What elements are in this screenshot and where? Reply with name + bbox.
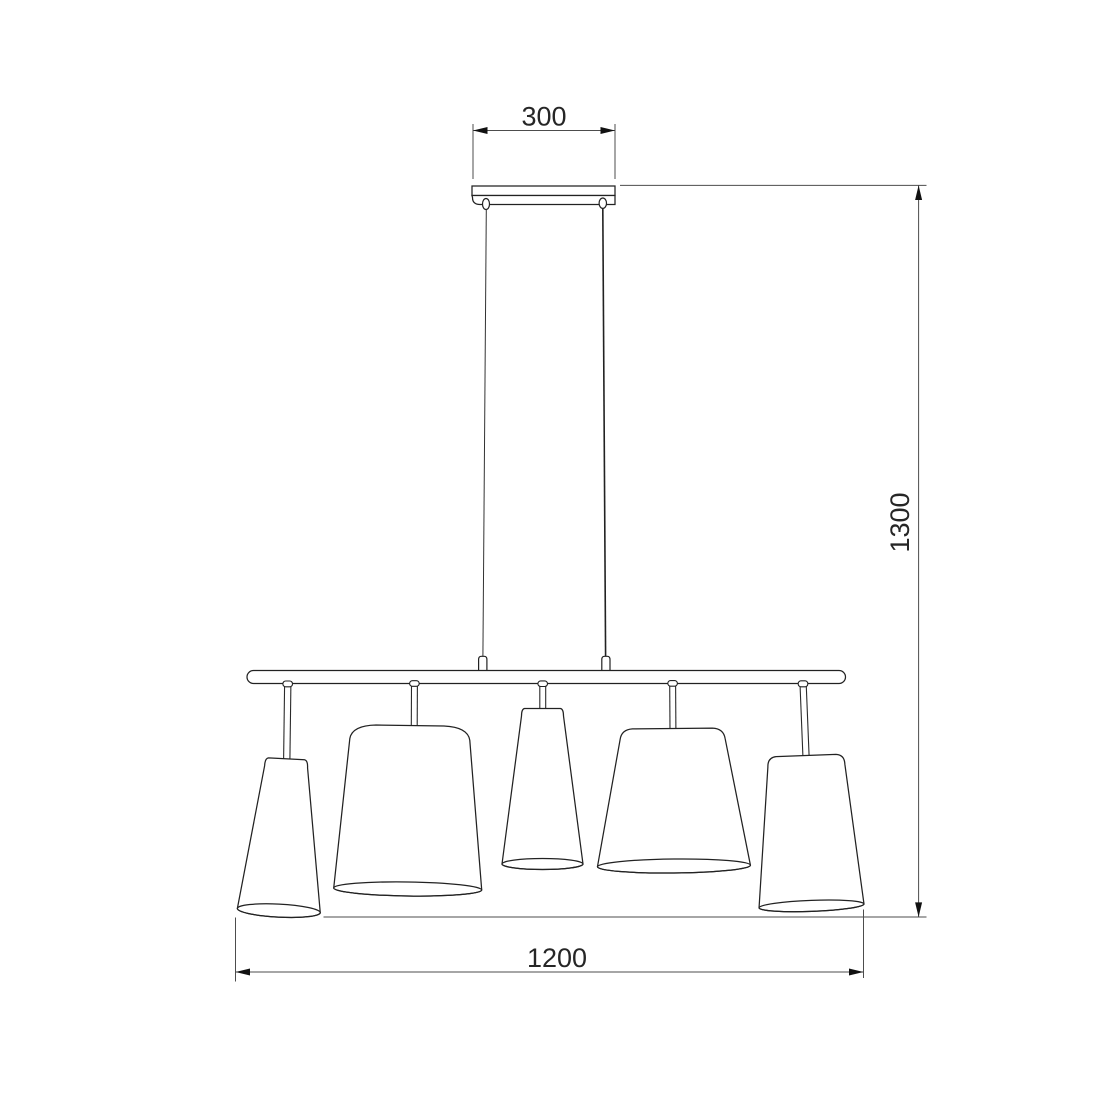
svg-text:1200: 1200	[527, 943, 587, 973]
svg-text:300: 300	[521, 102, 566, 132]
svg-text:1300: 1300	[885, 492, 915, 552]
